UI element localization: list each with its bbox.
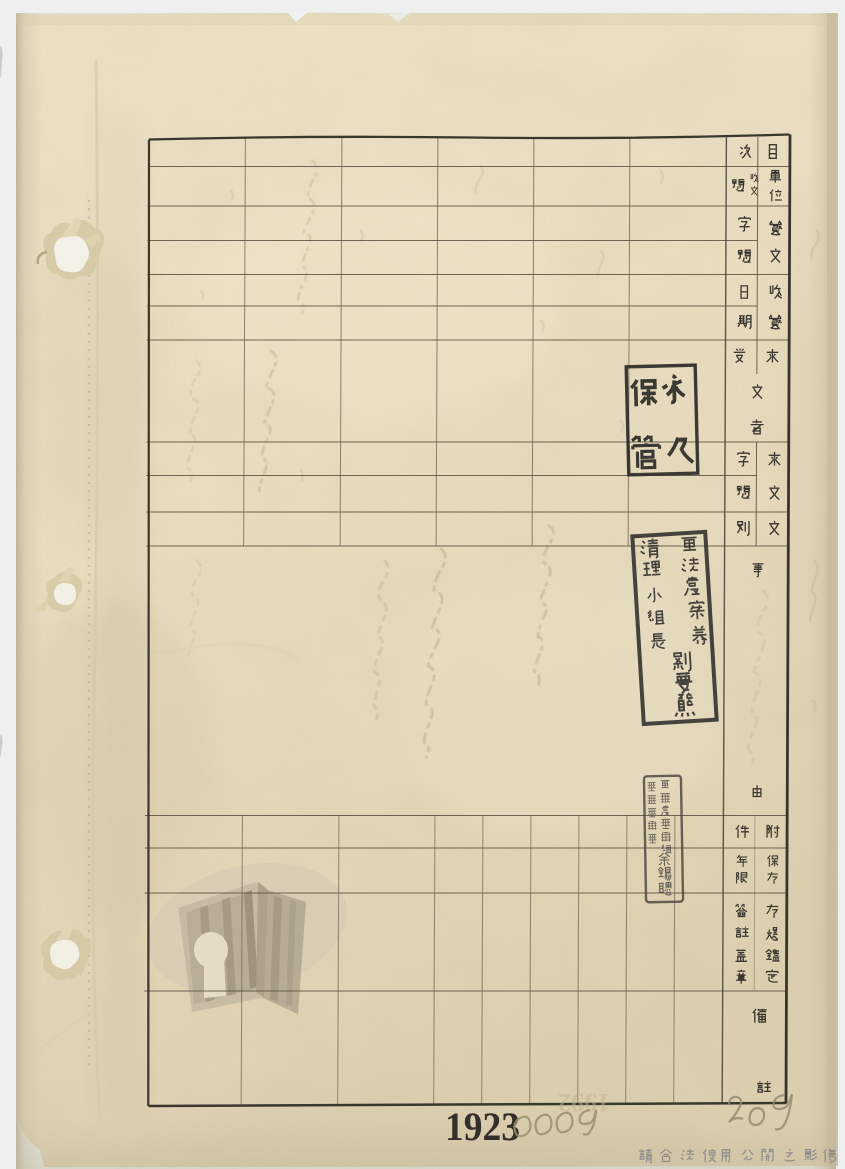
svg-text:1923: 1923 — [445, 1104, 520, 1149]
